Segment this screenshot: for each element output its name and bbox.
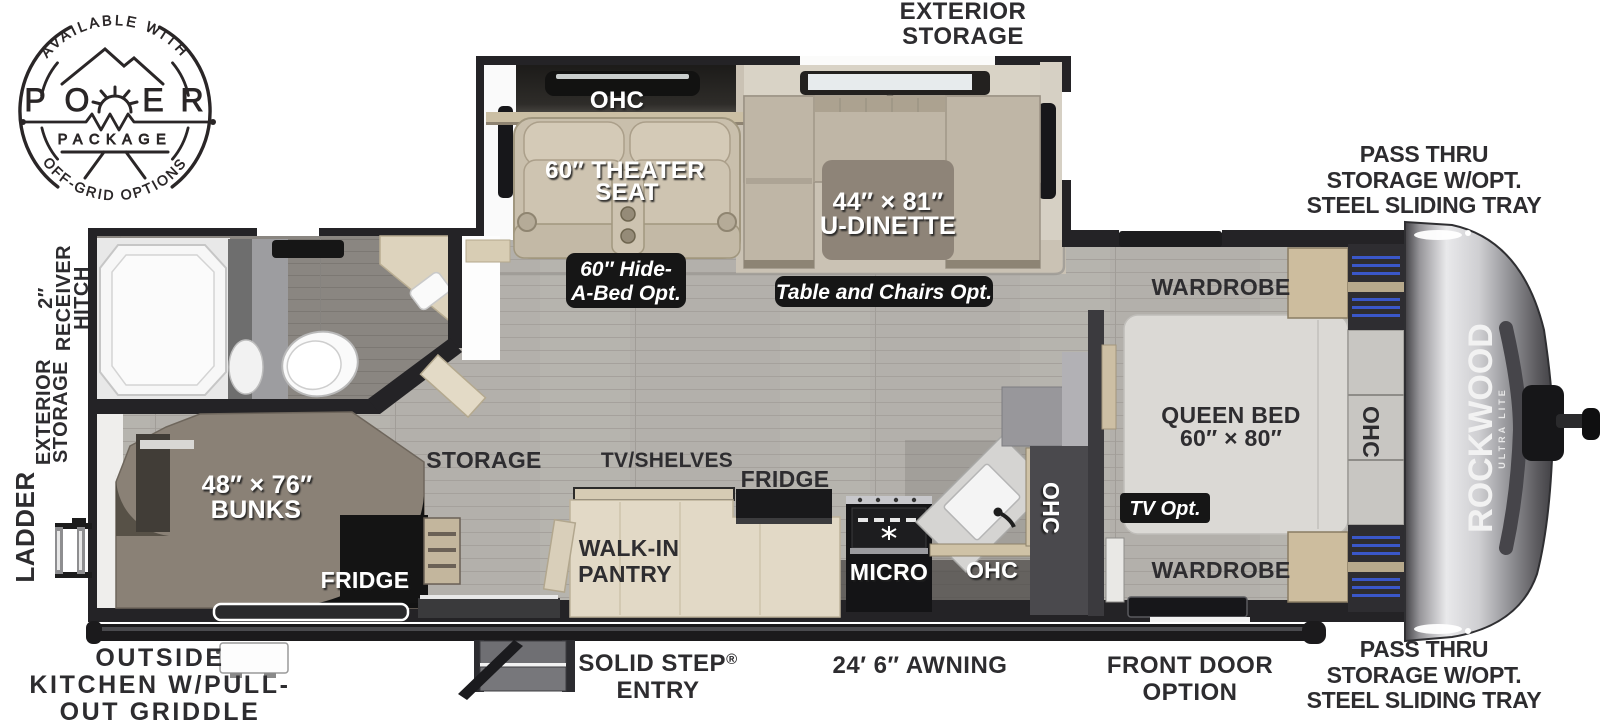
svg-text:WARDROBE: WARDROBE	[1151, 557, 1290, 583]
svg-text:ULTRA LITE: ULTRA LITE	[1497, 387, 1507, 469]
svg-text:48″ × 76″: 48″ × 76″	[202, 471, 313, 499]
svg-text:MICRO: MICRO	[850, 559, 928, 585]
svg-text:WALK-IN: WALK-IN	[579, 535, 679, 561]
svg-text:EXTERIOR: EXTERIOR	[900, 0, 1027, 25]
svg-text:OHC: OHC	[1358, 406, 1384, 458]
svg-text:A-Bed Opt.: A-Bed Opt.	[570, 282, 681, 305]
svg-text:STEEL SLIDING TRAY: STEEL SLIDING TRAY	[1307, 687, 1542, 713]
svg-text:OUTSIDE: OUTSIDE	[95, 644, 224, 672]
svg-text:FRONT DOOR: FRONT DOOR	[1107, 652, 1273, 679]
svg-text:P: P	[24, 82, 45, 118]
svg-text:24′ 6″ AWNING: 24′ 6″ AWNING	[833, 652, 1008, 679]
svg-text:U-DINETTE: U-DINETTE	[820, 212, 956, 240]
svg-text:SEAT: SEAT	[595, 179, 658, 206]
svg-text:OHC: OHC	[1038, 482, 1064, 534]
svg-text:OHC: OHC	[966, 557, 1018, 583]
svg-text:STORAGE W/OPT.: STORAGE W/OPT.	[1327, 662, 1522, 688]
svg-text:PASS THRU: PASS THRU	[1360, 141, 1489, 167]
svg-text:PACKAGE: PACKAGE	[58, 132, 173, 148]
svg-text:STORAGE: STORAGE	[50, 361, 72, 463]
svg-text:TV Opt.: TV Opt.	[1129, 498, 1200, 520]
svg-text:R: R	[180, 82, 203, 118]
svg-text:FRIDGE: FRIDGE	[741, 466, 830, 492]
svg-text:TV/SHELVES: TV/SHELVES	[601, 449, 733, 472]
svg-text:STEEL SLIDING TRAY: STEEL SLIDING TRAY	[1307, 192, 1542, 218]
svg-text:OHC: OHC	[590, 87, 644, 114]
svg-text:60″ × 80″: 60″ × 80″	[1180, 425, 1282, 451]
svg-text:OPTION: OPTION	[1142, 679, 1237, 706]
svg-text:ROCKWOOD: ROCKWOOD	[1462, 323, 1500, 533]
svg-text:OUT GRIDDLE: OUT GRIDDLE	[60, 698, 261, 724]
svg-text:LADDER: LADDER	[10, 471, 40, 582]
svg-text:FRIDGE: FRIDGE	[321, 567, 410, 593]
svg-text:KITCHEN W/PULL-: KITCHEN W/PULL-	[29, 671, 290, 699]
svg-text:STORAGE: STORAGE	[902, 23, 1024, 50]
svg-text:PANTRY: PANTRY	[578, 561, 672, 587]
svg-text:E: E	[142, 82, 163, 118]
svg-text:SOLID STEP®: SOLID STEP®	[578, 650, 737, 677]
svg-text:STORAGE W/OPT.: STORAGE W/OPT.	[1327, 167, 1522, 193]
svg-text:O: O	[65, 82, 90, 118]
svg-text:BUNKS: BUNKS	[211, 496, 301, 524]
svg-text:PASS THRU: PASS THRU	[1360, 636, 1489, 662]
svg-text:Table and Chairs Opt.: Table and Chairs Opt.	[776, 281, 992, 304]
svg-text:WARDROBE: WARDROBE	[1151, 274, 1290, 300]
svg-text:60″ Hide-: 60″ Hide-	[580, 258, 672, 281]
svg-text:STORAGE: STORAGE	[426, 447, 541, 473]
svg-text:ENTRY: ENTRY	[617, 677, 700, 704]
svg-text:HITCH: HITCH	[71, 266, 93, 330]
